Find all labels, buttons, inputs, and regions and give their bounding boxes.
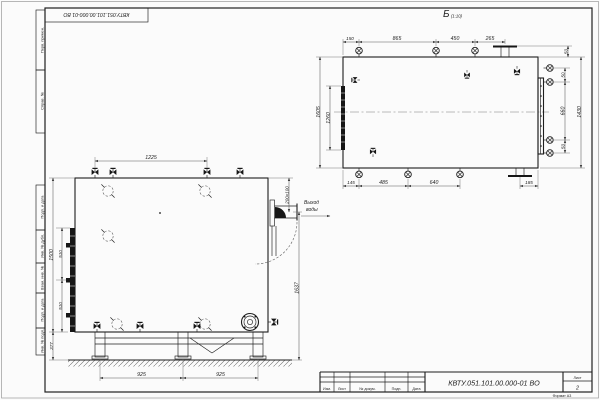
dim-plan-topright-50: 50 — [564, 49, 569, 55]
dim-plan-top-450: 450 — [451, 36, 460, 42]
outlet-label-line1: Выход — [304, 200, 319, 206]
plan-view-label: Б — [443, 9, 450, 20]
dim-front-left-1500: 1500 — [49, 249, 55, 261]
outlet-label-line2: воды — [306, 207, 318, 213]
dim-front-left-377: 377 — [49, 342, 54, 350]
dim-front-left-510b: 510 — [58, 302, 63, 310]
plan-dims-top: 150 865 450 265 50 — [343, 36, 572, 57]
drawing-canvas: Перв. примен. Справ. № Подп. и дата Инв.… — [0, 0, 600, 400]
plan-view: Б (1:10) — [316, 9, 585, 189]
margin-label-inv-dubl: Инв. № дубл. — [40, 234, 45, 258]
front-ghost-3 — [101, 229, 114, 242]
plan-inner-valve-2 — [464, 70, 470, 78]
dim-plan-bottom-145: 145 — [347, 180, 355, 185]
margin-label-perv-primen: Перв. примен. — [40, 27, 45, 53]
dim-plan-left-1260: 1260 — [326, 112, 332, 124]
top-stamp: КВТУ.051.101.00.000-01 ВО — [45, 8, 148, 22]
dim-plan-bottom-185: 185 — [525, 180, 533, 185]
plan-left-bracket — [341, 86, 345, 150]
front-side-valve — [268, 319, 278, 326]
title-block: Изм. Лист № докум. Подп. Дата КВТУ.051.1… — [320, 372, 592, 398]
margin-label-vzam-inv: Взам. инв. № — [40, 266, 45, 290]
dim-plan-top-150: 150 — [346, 36, 354, 41]
plan-top-nozzle — [493, 47, 517, 58]
front-view: Выход воды 1225 510 510 1500 377 — [49, 155, 330, 381]
plan-inner-valve-4 — [370, 148, 376, 157]
plan-valve-bottom-3 — [457, 168, 464, 178]
dim-plan-right-50a: 50 — [561, 72, 566, 78]
plan-inner-valve-1 — [352, 77, 360, 83]
dim-front-bottom-925a: 925 — [137, 372, 146, 378]
dim-front-right-1637: 1637 — [295, 281, 301, 294]
dim-front-left-510a: 510 — [58, 250, 63, 258]
front-ghost-2 — [198, 184, 211, 197]
titleblock-col-list: Лист — [338, 387, 346, 391]
front-valve-bottom-1 — [94, 322, 101, 332]
plan-inner-valve-3 — [514, 66, 520, 75]
front-ghost-1 — [101, 184, 114, 197]
dim-plan-top-865: 865 — [393, 36, 402, 42]
dim-plan-right-1430: 1430 — [577, 106, 583, 118]
dim-plan-top-265: 265 — [485, 36, 495, 42]
plan-dims-bottom: 145 485 640 185 — [343, 170, 538, 189]
margin-label-podp-data-1: Подп. и дата — [40, 195, 45, 219]
titleblock-sheet-label: Лист — [573, 376, 581, 380]
margin-label-sprav-no: Справ. № — [40, 92, 45, 110]
titleblock-col-dokum: № докум. — [359, 387, 375, 391]
front-valve-top-1 — [92, 168, 99, 178]
titleblock-col-data: Дата — [412, 387, 421, 391]
titleblock-col-izm: Изм. — [323, 387, 331, 391]
front-water-outlet: Выход воды — [255, 200, 330, 264]
dim-plan-bottom-640: 640 — [430, 180, 439, 186]
front-valve-top-4 — [237, 168, 244, 178]
front-ladder — [66, 228, 75, 332]
front-flange-connection — [242, 314, 259, 331]
dim-plan-right-660: 660 — [561, 107, 567, 116]
front-valve-bottom-2 — [137, 322, 144, 332]
plan-dims-left: 1260 1605 — [316, 57, 343, 168]
plan-view-scale: (1:10) — [451, 14, 463, 19]
top-stamp-number: КВТУ.051.101.00.000-01 ВО — [63, 11, 129, 17]
dim-plan-right-50b: 50 — [561, 144, 566, 150]
format-label: Формат А3 — [553, 394, 572, 398]
plan-valve-top-3 — [472, 47, 479, 57]
front-center-mark — [159, 212, 161, 214]
titleblock-sheet-number: 2 — [575, 386, 579, 392]
frame-margin-cells: Перв. примен. Справ. № Подп. и дата Инв.… — [36, 10, 45, 355]
dim-plan-left-1605: 1605 — [316, 106, 322, 118]
front-tank-outline — [75, 178, 268, 332]
margin-label-podp-data-2: Подп. и дата — [40, 298, 45, 322]
dim-front-top-1225: 1225 — [145, 155, 157, 161]
plan-valve-top-2 — [433, 47, 440, 57]
front-valve-top-2 — [110, 168, 117, 178]
plan-valve-bottom-1 — [356, 168, 363, 178]
front-valve-bottom-3 — [194, 322, 201, 332]
drawing-sheet: Перв. примен. Справ. № Подп. и дата Инв.… — [0, 0, 600, 400]
plan-right-flange — [538, 78, 544, 154]
dim-plan-bottom-485: 485 — [379, 180, 388, 186]
sheet-frame — [2, 2, 599, 399]
titleblock-doc-number: КВТУ.051.101.00.000-01 ВО — [448, 379, 540, 388]
plan-valve-bottom-2 — [405, 168, 412, 178]
plan-bottom-nozzle — [508, 168, 532, 176]
margin-label-inv-podl: Инв. № подл. — [40, 329, 45, 353]
titleblock-col-podp: Подп. — [392, 387, 402, 391]
plan-valve-top-1 — [356, 47, 363, 57]
front-ghost-4 — [110, 317, 123, 330]
front-support-frame — [68, 332, 292, 367]
front-valve-top-3 — [204, 168, 211, 178]
front-dim-top: 1225 — [95, 155, 207, 168]
dim-front-outlet-200x100: 200х100 — [285, 186, 290, 205]
dim-front-bottom-925b: 925 — [216, 372, 225, 378]
